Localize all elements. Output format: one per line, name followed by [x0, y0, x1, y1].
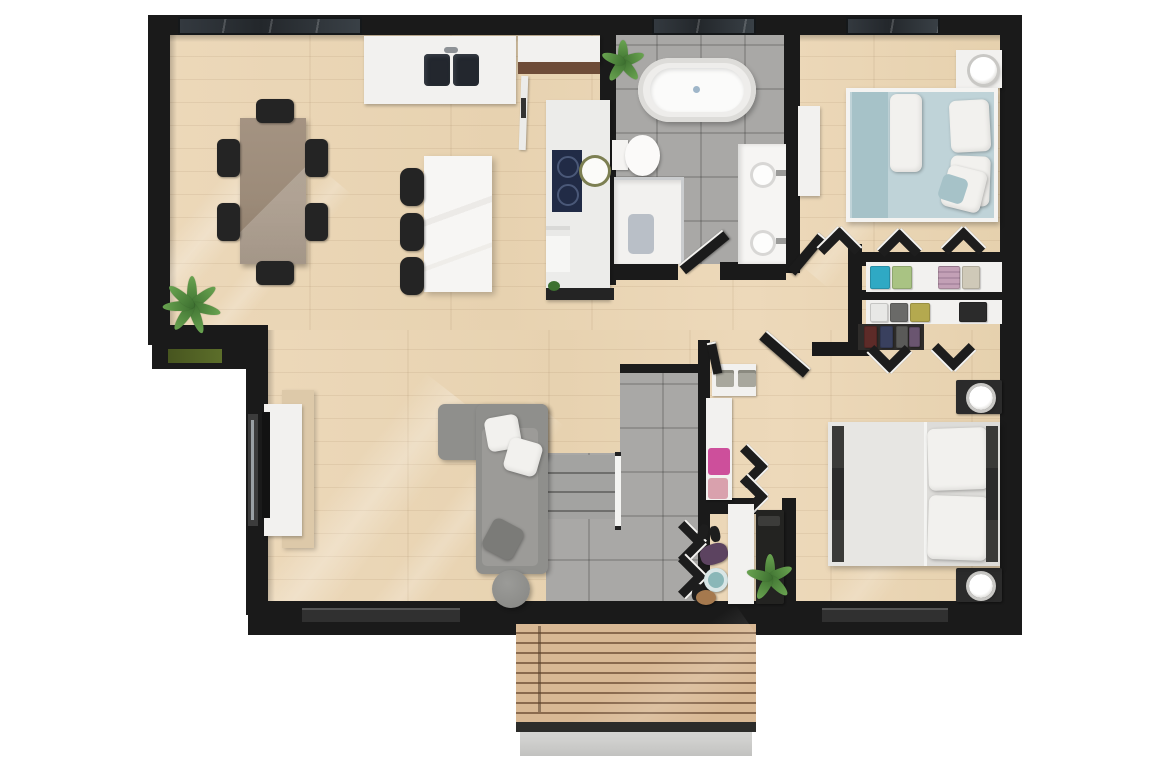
toilet-bowl: [625, 135, 660, 176]
kitchen-sink-basin: [453, 54, 479, 86]
deck-edge: [516, 722, 756, 732]
bathtub: [638, 58, 756, 122]
folded-clothes-teal: [870, 266, 890, 289]
bed2-pillow: [927, 427, 989, 491]
bar-stool: [400, 168, 424, 206]
stair-railing-edge: [620, 364, 700, 373]
window-glass-line: [251, 420, 254, 520]
bedroom1-dresser: [798, 106, 820, 196]
dining-chair: [305, 203, 328, 241]
cooktop: [552, 150, 582, 212]
bathroom-window: [652, 17, 756, 35]
deck: [516, 624, 756, 728]
folded-clothes-black: [959, 302, 987, 322]
bedroom1-bed: [846, 88, 998, 222]
wardrobe-door-chevron: [866, 344, 912, 376]
bed2-side-rail: [832, 426, 844, 562]
leaning-board-grip: [521, 98, 526, 118]
living-bottom-window: [302, 608, 460, 622]
wardrobe-door-chevron: [816, 224, 862, 256]
shirt-white: [870, 303, 888, 322]
dining-window: [178, 17, 362, 35]
wardrobe-door-chevron: [930, 342, 976, 374]
small-stool: [696, 590, 716, 605]
dining-table: [240, 118, 306, 264]
kitchen-sink-basin: [424, 54, 450, 86]
vanity-sink: [750, 162, 776, 188]
bathtub-drain: [693, 86, 700, 93]
bed2-pillow: [927, 495, 989, 561]
linen-shelf: [706, 398, 732, 500]
pouf: [492, 570, 530, 608]
bathroom-plant: [604, 40, 642, 82]
bedroom2-lamp: [969, 574, 993, 598]
kitchen-tall-cabinet: [518, 36, 600, 64]
deck-plank-seam: [538, 626, 541, 712]
bedroom1-lamp: [970, 57, 997, 84]
storage-box: [738, 370, 756, 387]
shower-glass-edge: [681, 180, 684, 264]
shower-glass-edge: [614, 177, 684, 180]
bar-stool: [400, 213, 424, 251]
folded-clothes-beige: [962, 266, 980, 289]
dining-chair: [256, 99, 294, 123]
round-basin: [582, 158, 608, 184]
vanity-faucet: [776, 238, 786, 244]
shoe-bench: [728, 504, 754, 604]
outer-wall-right: [1000, 15, 1022, 635]
shower-mat: [628, 214, 654, 254]
rose-box: [708, 478, 728, 499]
planter-greenery: [168, 349, 222, 363]
bed1-pillow: [949, 99, 992, 153]
floor-plan-canvas: [0, 0, 1170, 780]
wall-bathroom-bottom-left: [600, 262, 678, 280]
counter-plant: [548, 281, 560, 291]
folded-clothes-green: [892, 266, 912, 289]
burner: [557, 156, 579, 178]
deck-step: [520, 732, 752, 756]
bedroom2-bed: [828, 422, 1000, 566]
shirt-yellow: [910, 303, 930, 322]
bed2-side-rail: [986, 426, 998, 562]
bar-stool: [400, 257, 424, 295]
staircase-treads: [546, 455, 618, 519]
folded-clothes-plaid: [938, 266, 960, 289]
console-plant: [752, 550, 788, 598]
oven-unit: [546, 226, 570, 272]
basket: [704, 568, 728, 592]
living-side-window: [248, 414, 258, 526]
kitchen-island: [424, 156, 492, 292]
wall-bathroom-bottom-right: [720, 262, 786, 280]
corner-palm-plant: [160, 274, 224, 336]
shower-floor: [614, 180, 684, 264]
double-vanity: [738, 144, 786, 264]
vanity-faucet: [776, 170, 786, 176]
shirt-gray: [890, 303, 908, 322]
bedroom1-window: [846, 17, 940, 35]
dining-chair: [217, 139, 240, 177]
kitchen-faucet: [444, 47, 458, 53]
bedroom2-bottom-window: [822, 608, 948, 622]
stair-handrail: [615, 452, 621, 530]
dining-chair: [256, 261, 294, 285]
dining-chair: [217, 203, 240, 241]
wardrobe-door-chevron: [876, 226, 922, 258]
bed1-white-throw: [890, 94, 922, 172]
bed1-throw: [852, 92, 888, 218]
wardrobe-door-chevron: [940, 224, 986, 256]
pink-box: [708, 448, 730, 475]
tv-screen: [262, 412, 270, 518]
burner: [557, 184, 579, 206]
console-tray: [758, 516, 780, 526]
bedroom2-lamp: [969, 386, 993, 410]
vanity-sink: [750, 230, 776, 256]
dining-chair: [305, 139, 328, 177]
kitchen-cabinet-wood-top: [518, 62, 600, 74]
